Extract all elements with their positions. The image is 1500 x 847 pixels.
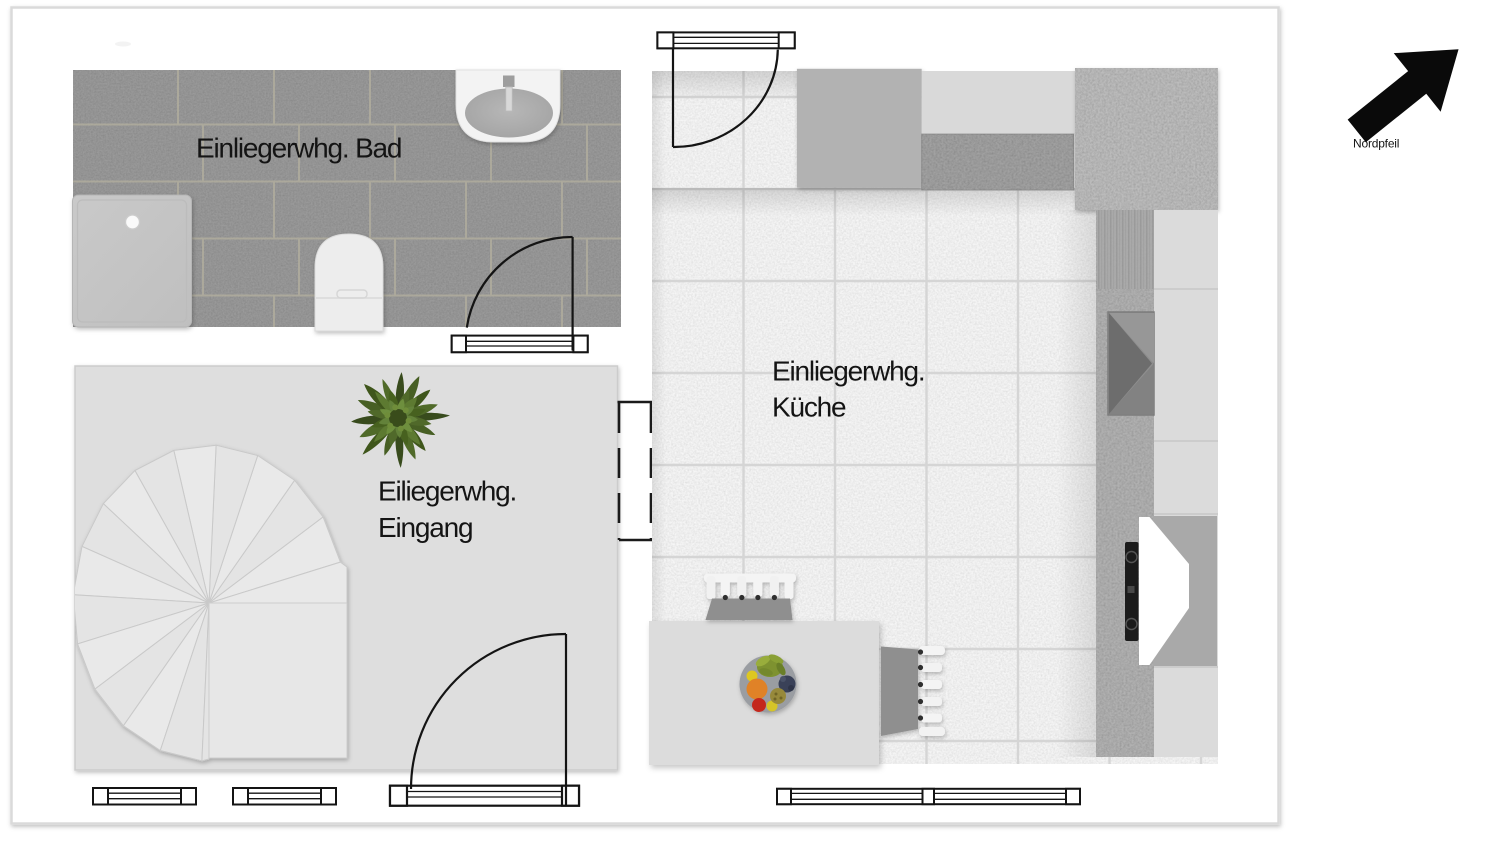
svg-text:Einliegerwhg.: Einliegerwhg. bbox=[772, 356, 925, 387]
svg-text:Eiliegerwhg.: Eiliegerwhg. bbox=[378, 476, 516, 507]
svg-text:Eingang: Eingang bbox=[378, 512, 472, 543]
svg-text:Nordpfeil: Nordpfeil bbox=[1353, 137, 1399, 151]
svg-text:Küche: Küche bbox=[772, 392, 846, 423]
svg-text:Einliegerwhg. Bad: Einliegerwhg. Bad bbox=[196, 133, 401, 164]
